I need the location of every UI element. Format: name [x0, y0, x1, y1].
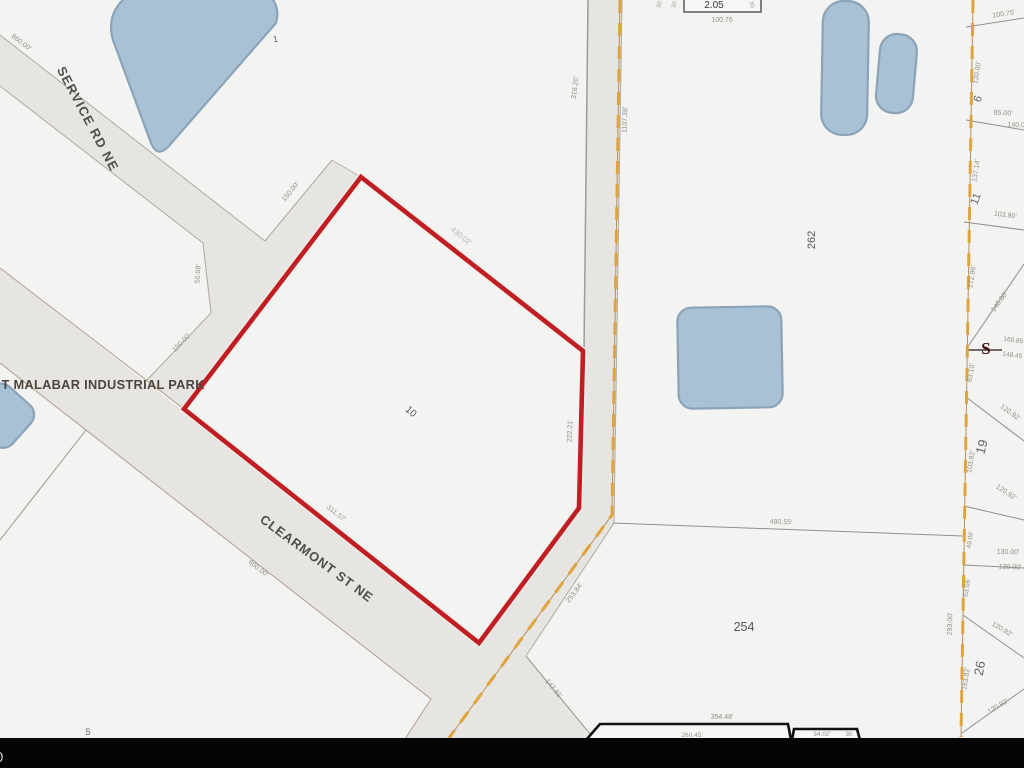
svg-text:100.76: 100.76 — [711, 17, 733, 24]
svg-text:30: 30 — [846, 732, 853, 738]
svg-text:50.98': 50.98' — [194, 264, 202, 283]
svg-text:222.21': 222.21' — [567, 419, 575, 442]
svg-text:293.00': 293.00' — [947, 612, 955, 635]
svg-text:T MALABAR INDUSTRIAL PARK: T MALABAR INDUSTRIAL PARK — [2, 377, 206, 392]
svg-text:130.00': 130.00' — [999, 564, 1022, 572]
svg-text:254: 254 — [734, 620, 755, 634]
svg-text:S: S — [981, 339, 990, 358]
svg-text:85.00': 85.00' — [993, 110, 1012, 118]
svg-text:1107.38': 1107.38' — [622, 107, 630, 133]
svg-text:490.55': 490.55' — [770, 519, 793, 527]
svg-text:260.45': 260.45' — [681, 732, 702, 739]
svg-text:0: 0 — [0, 749, 3, 766]
svg-text:262: 262 — [806, 231, 818, 249]
svg-text:34.02': 34.02' — [813, 731, 831, 738]
svg-text:130.00': 130.00' — [997, 549, 1020, 557]
svg-text:354.48': 354.48' — [711, 714, 734, 721]
svg-text:140.00: 140.00 — [1007, 121, 1024, 129]
svg-text:5: 5 — [85, 727, 90, 737]
svg-text:26: 26 — [971, 660, 988, 677]
svg-text:2.05: 2.05 — [704, 0, 724, 11]
